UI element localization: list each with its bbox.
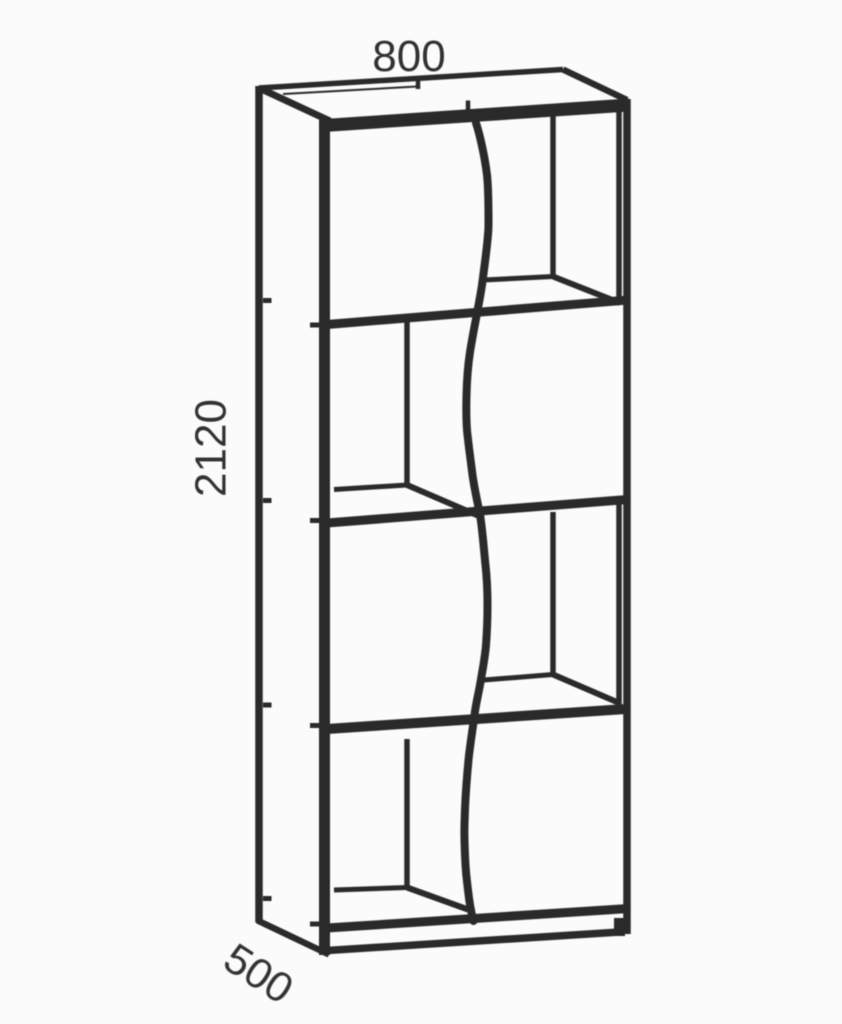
svg-text:2120: 2120 [187, 399, 236, 497]
svg-text:800: 800 [372, 32, 445, 81]
